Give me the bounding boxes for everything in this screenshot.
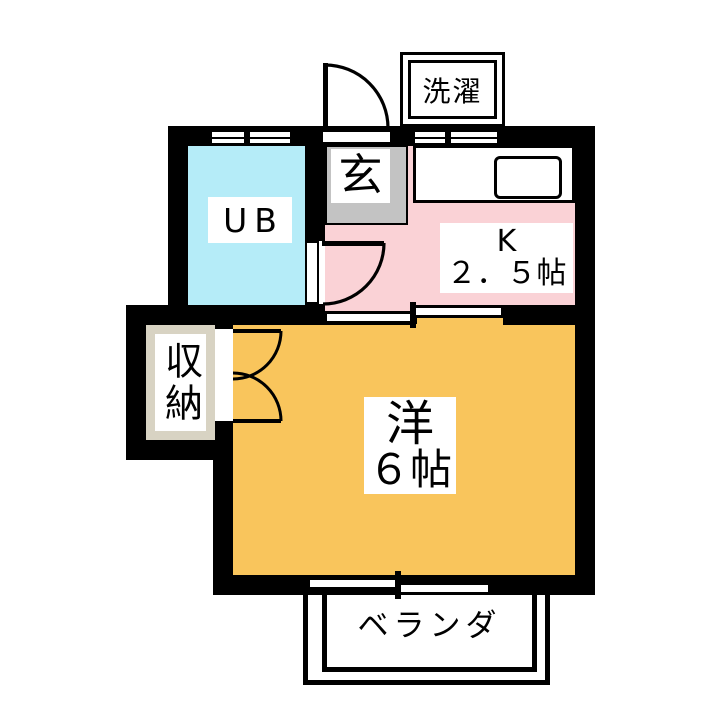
entrance-door-opening <box>323 132 390 142</box>
veranda-window-right-panel <box>398 582 490 595</box>
veranda-window-left-panel <box>308 577 402 590</box>
veranda-inner-line: ベランダ <box>322 590 537 672</box>
kitchen-label-box: K ２．５帖 <box>440 223 573 293</box>
window-top-right-midline <box>415 137 497 139</box>
entrance-door-arc <box>325 65 388 128</box>
western-room-size-label: ６帖 <box>368 448 452 492</box>
closet-label: 収納 <box>162 341 200 425</box>
wall-upper-left <box>168 126 188 306</box>
closet-door-leaf-bottom <box>233 419 281 423</box>
western-room-label-box: 洋 ６帖 <box>364 397 456 494</box>
wall-right <box>575 126 595 595</box>
laundry-box: 洗濯 <box>400 52 505 127</box>
window-top-left <box>212 132 290 143</box>
floor-plan: ベランダ 収納 U <box>0 0 720 720</box>
unit-bath-label: UB <box>216 201 284 240</box>
laundry-label: 洗濯 <box>422 70 482 110</box>
closet-door-leaf-top <box>233 329 281 333</box>
veranda-label: ベランダ <box>327 600 532 645</box>
kitchen-size-label: ２．５帖 <box>447 258 567 290</box>
western-room-name-label: 洋 <box>386 400 434 448</box>
kitchen-slider-left-panel <box>325 311 417 324</box>
veranda-window-tick <box>395 571 401 599</box>
slider-room-patch <box>413 318 503 325</box>
wall-lower-left <box>126 305 146 460</box>
kitchen-slider-right-panel <box>413 305 503 318</box>
closet-door-opening <box>215 329 233 421</box>
ub-door-open-leaf <box>322 241 384 246</box>
unit-bath-label-box: UB <box>208 197 292 243</box>
entrance-label: 玄 <box>339 154 383 198</box>
kitchen-slider-tick <box>410 302 416 328</box>
closet: 収納 <box>146 325 215 440</box>
window-top-left-midline <box>212 137 290 139</box>
kitchen-name-label: K <box>497 226 517 258</box>
entrance-door-leaf <box>323 63 328 128</box>
entrance-label-box: 玄 <box>331 149 390 203</box>
window-top-left-tick <box>244 127 250 146</box>
ub-door-closed-leaf <box>305 241 319 304</box>
laundry-box-inner: 洗濯 <box>408 60 497 119</box>
kitchen-sink <box>494 156 562 199</box>
window-top-right <box>415 132 497 143</box>
